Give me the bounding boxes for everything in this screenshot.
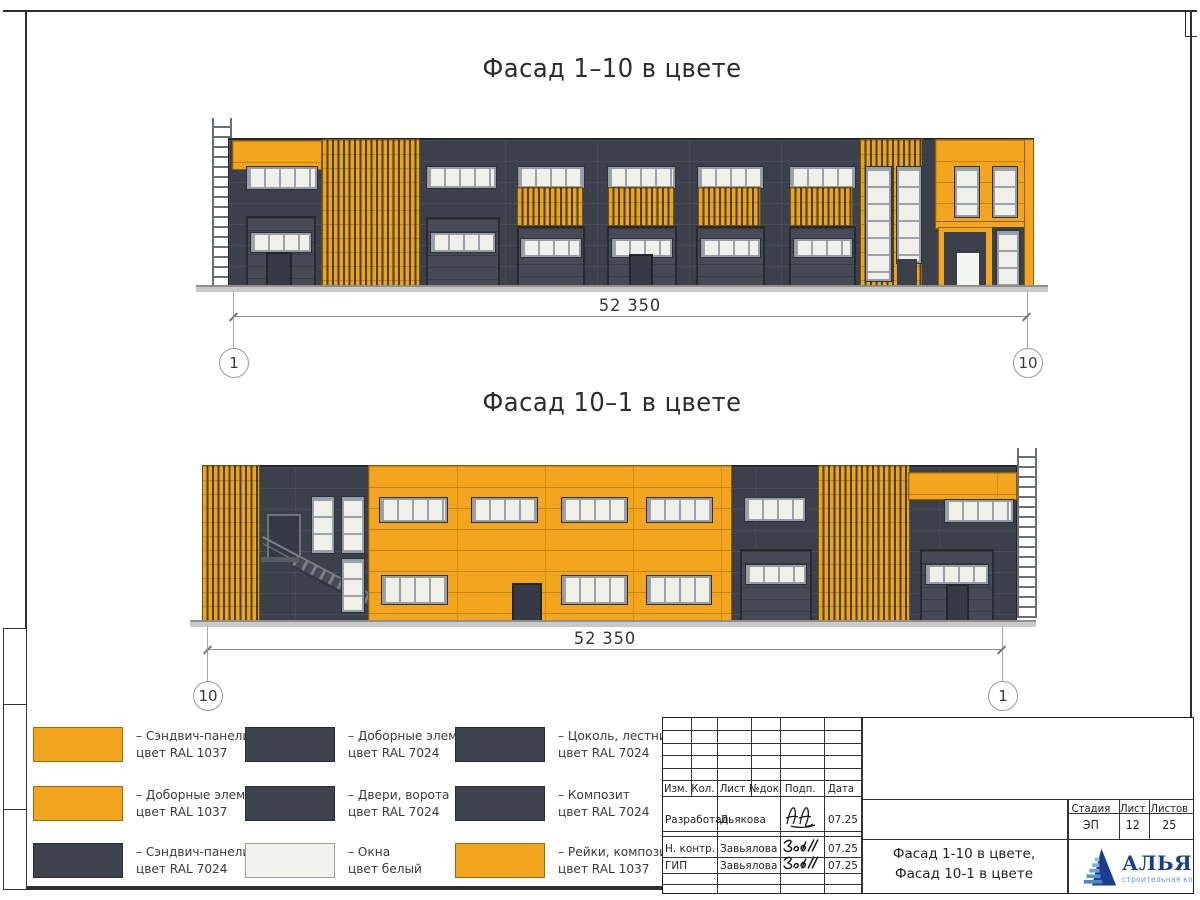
- axis-bubble: 10: [193, 681, 223, 711]
- window-strip: [518, 167, 584, 188]
- legend-item: – Двери, воротацвет RAL 7024: [245, 786, 453, 821]
- facade1-title: Фасад 1–10 в цвете: [240, 54, 984, 84]
- tall-window: [342, 497, 364, 553]
- slat-spandrel: [517, 187, 583, 226]
- signature-icon: [781, 854, 825, 873]
- axis-leader: [233, 317, 234, 348]
- sheet-label: Лист: [1119, 802, 1147, 815]
- legend-item: – Рейки, композитцвет RAL 1037: [455, 843, 678, 878]
- legend-label: цвет RAL 1037: [136, 745, 250, 761]
- row-date: 07.25: [828, 859, 858, 872]
- frame-top-line: [3, 10, 1197, 12]
- window-strip: [608, 167, 675, 188]
- tall-window: [993, 167, 1017, 217]
- window-strip: [431, 233, 495, 252]
- sheets-value: 25: [1149, 818, 1189, 832]
- window-strip: [745, 498, 805, 521]
- window-strip: [562, 576, 627, 604]
- col-list: Лист: [717, 782, 748, 795]
- window-strip: [746, 565, 806, 584]
- orange-band: [908, 472, 1017, 500]
- stair-platform: [261, 557, 299, 562]
- company-logo-name: АЛЬЯНС: [1122, 851, 1194, 875]
- facade2-roof-ladder: [1017, 448, 1037, 618]
- gate: [740, 549, 812, 624]
- frame-corner-box: [1185, 12, 1186, 36]
- row-name: Завьялова: [720, 842, 777, 855]
- color-swatch: [245, 843, 335, 878]
- row-role: Н. контр.: [665, 842, 715, 855]
- col-data: Дата: [824, 782, 858, 795]
- door: [512, 583, 542, 624]
- stage-value: ЭП: [1067, 818, 1115, 832]
- stage-label: Стадия: [1067, 802, 1115, 815]
- axis-leader: [1027, 317, 1028, 348]
- color-swatch: [455, 786, 545, 821]
- left-margin-cells: [3, 628, 27, 890]
- slat-spandrel: [698, 187, 761, 226]
- tall-window: [312, 497, 334, 553]
- facade1-orange-corner: [935, 139, 1034, 223]
- dimension-label: 52 350: [564, 296, 697, 316]
- axis-bubble: 10: [1013, 348, 1043, 378]
- legend-label: цвет RAL 1037: [558, 861, 674, 877]
- drawing-sheet: Фасад 1–10 в цвете 52 350 1 10: [0, 0, 1200, 900]
- ground-line: [190, 620, 1036, 627]
- window-strip: [562, 498, 627, 522]
- row-role: ГИП: [665, 859, 687, 872]
- legend-item: – Цоколь, лестницацвет RAL 7024: [455, 727, 686, 762]
- window-strip: [926, 565, 988, 584]
- col-podp: Подп.: [780, 782, 820, 795]
- color-swatch: [245, 727, 335, 762]
- color-swatch: [33, 727, 123, 762]
- ground-line: [196, 285, 1048, 292]
- color-swatch: [33, 786, 123, 821]
- window-strip: [247, 167, 317, 189]
- tall-window: [897, 167, 921, 263]
- col-ndok: №док.: [749, 782, 778, 795]
- signature-icon: [783, 802, 823, 829]
- left-margin-divider: [4, 809, 26, 810]
- color-swatch: [33, 843, 123, 878]
- row-name: Завьялова: [720, 859, 777, 872]
- legend-label: – Композит: [558, 787, 649, 803]
- row-name: Дьякова: [720, 813, 766, 826]
- window-strip: [701, 239, 760, 257]
- window-strip: [794, 239, 852, 257]
- doc-title-line2: Фасад 10-1 в цвете: [861, 866, 1067, 882]
- axis-leader: [207, 650, 208, 681]
- sheet-value: 12: [1119, 818, 1147, 832]
- row-role: Разработал: [665, 813, 728, 826]
- axis-leader: [1002, 650, 1003, 681]
- tall-window: [997, 231, 1019, 288]
- door: [946, 584, 969, 624]
- window-strip: [698, 167, 763, 188]
- gate: [789, 226, 856, 290]
- window-strip: [790, 167, 855, 188]
- window-strip: [427, 167, 496, 188]
- slat-section: [322, 139, 420, 288]
- legend-label: цвет белый: [348, 861, 422, 877]
- company-logo-subtitle: строительная компания: [1122, 875, 1194, 884]
- row-date: 07.25: [828, 813, 858, 826]
- left-margin-divider: [4, 704, 26, 705]
- window-strip: [472, 498, 537, 522]
- window-strip: [380, 498, 447, 522]
- doc-title-line1: Фасад 1-10 в цвете,: [861, 846, 1067, 862]
- color-swatch: [245, 786, 335, 821]
- legend-label: – Окна: [348, 844, 422, 860]
- sheets-label: Листов: [1149, 802, 1189, 815]
- legend-label: – Двери, ворота: [348, 787, 449, 803]
- legend-item: – Композитцвет RAL 7024: [455, 786, 652, 821]
- col-izm: Изм.: [663, 782, 689, 795]
- door-white: [956, 252, 980, 288]
- slat-spandrel: [608, 187, 674, 226]
- facade1-orange-panel: [232, 140, 322, 170]
- dimension-label: 52 350: [539, 629, 672, 649]
- tall-window: [955, 167, 979, 217]
- tall-window: [866, 167, 891, 281]
- legend-label: – Сэндвич-панели: [136, 728, 250, 744]
- legend-label: цвет RAL 7024: [136, 861, 250, 877]
- axis-bubble: 1: [988, 681, 1018, 711]
- color-swatch: [455, 843, 545, 878]
- wall-panel: [897, 259, 917, 286]
- legend-item: – Сэндвич-панелицвет RAL 7024: [33, 843, 254, 878]
- frame-corner-box-bottom: [1185, 36, 1197, 37]
- dimension-line: [207, 649, 1002, 650]
- gate: [426, 217, 500, 290]
- color-swatch: [455, 727, 545, 762]
- row-date: 07.25: [828, 842, 858, 855]
- legend-label: – Рейки, композит: [558, 844, 674, 860]
- window-strip: [251, 233, 311, 252]
- dimension-line: [233, 316, 1027, 317]
- slat-section: [818, 465, 910, 622]
- orange-corner-strip: [1024, 139, 1034, 288]
- gate: [517, 226, 585, 290]
- tall-window: [342, 559, 364, 612]
- legend-item: – Окнацвет белый: [245, 843, 424, 878]
- axis-bubble: 1: [219, 348, 249, 378]
- legend-label: – Сэндвич-панели: [136, 844, 250, 860]
- title-block: Изм. Кол. Лист №док. Подп. Дата Разработ…: [662, 717, 1194, 894]
- legend-item: – Сэндвич-панелицвет RAL 1037: [33, 727, 254, 762]
- company-logo-icon: [1081, 846, 1118, 888]
- legend-label: цвет RAL 7024: [348, 804, 449, 820]
- gate: [696, 226, 765, 290]
- slat-spandrel: [790, 187, 853, 226]
- window-strip: [382, 576, 447, 604]
- window-strip: [945, 500, 1013, 522]
- window-strip: [647, 576, 711, 604]
- slat-section: [202, 465, 260, 622]
- window-strip: [647, 498, 712, 522]
- wall-panel: [922, 140, 935, 285]
- legend-label: цвет RAL 7024: [558, 804, 649, 820]
- col-kol: Кол.: [691, 782, 715, 795]
- window-strip: [521, 239, 581, 257]
- facade2-title: Фасад 10–1 в цвете: [240, 388, 984, 418]
